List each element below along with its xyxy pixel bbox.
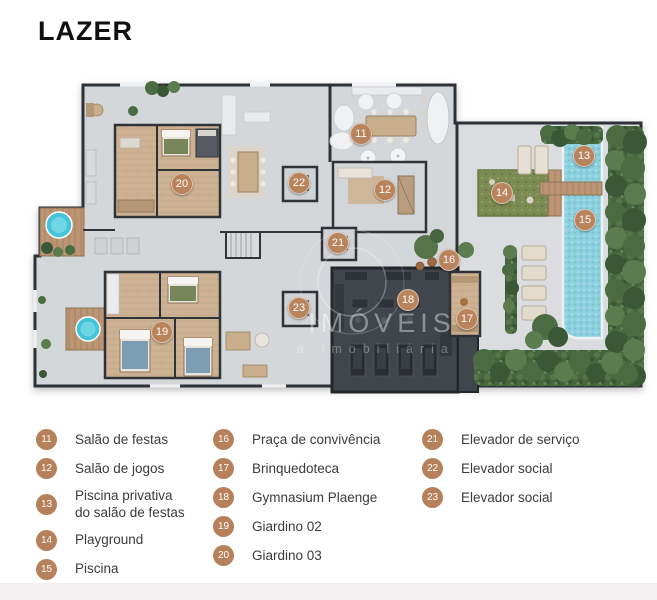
legend-column: 21Elevador de serviço22Elevador social23… [422,429,622,516]
legend-number-badge: 22 [422,458,443,479]
legend-number-badge: 15 [36,559,57,580]
legend-item-17: 17Brinquedoteca [213,458,403,479]
legend-item-13: 13Piscina privativa do salão de festas [36,487,196,522]
legend-item-11: 11Salão de festas [36,429,196,450]
legend-number-badge: 17 [213,458,234,479]
legend: 11Salão de festas12Salão de jogos13Pisci… [0,429,657,589]
legend-label: Praça de convivência [252,431,380,448]
legend-number-badge: 14 [36,530,57,551]
floor-plan: IMÓVEIS a imobiliária 111213141516171819… [0,0,657,420]
legend-item-23: 23Elevador social [422,487,622,508]
legend-item-12: 12Salão de jogos [36,458,196,479]
legend-item-18: 18Gymnasium Plaenge [213,487,403,508]
legend-number-badge: 21 [422,429,443,450]
page: LAZER [0,0,657,600]
legend-number-badge: 18 [213,487,234,508]
legend-item-15: 15Piscina [36,559,196,580]
legend-label: Salão de festas [75,431,168,448]
games-room [333,162,426,232]
legend-label: Piscina privativa do salão de festas [75,487,187,522]
legend-item-21: 21Elevador de serviço [422,429,622,450]
apartment-block-top [115,125,220,217]
legend-number-badge: 19 [213,516,234,537]
legend-label: Giardino 03 [252,547,322,564]
legend-item-19: 19Giardino 02 [213,516,403,537]
legend-column: 11Salão de festas12Salão de jogos13Pisci… [36,429,196,588]
footer-strip [0,583,657,600]
legend-label: Elevador social [461,489,553,506]
legend-item-22: 22Elevador social [422,458,622,479]
legend-column: 16Praça de convivência17Brinquedoteca18G… [213,429,403,574]
apartment-block-middle [105,272,220,378]
legend-label: Elevador social [461,460,553,477]
legend-number-badge: 23 [422,487,443,508]
legend-number-badge: 20 [213,545,234,566]
legend-number-badge: 11 [36,429,57,450]
legend-number-badge: 16 [213,429,234,450]
legend-label: Playground [75,531,143,548]
watermark-line2: a imobiliária [297,342,455,356]
legend-label: Brinquedoteca [252,460,339,477]
legend-label: Gymnasium Plaenge [252,489,377,506]
legend-item-20: 20Giardino 03 [213,545,403,566]
floor-plan-graphic: IMÓVEIS a imobiliária [0,0,657,420]
legend-label: Piscina [75,560,119,577]
legend-item-16: 16Praça de convivência [213,429,403,450]
legend-item-14: 14Playground [36,530,196,551]
legend-label: Giardino 02 [252,518,322,535]
legend-number-badge: 13 [36,494,57,515]
legend-label: Salão de jogos [75,460,164,477]
legend-number-badge: 12 [36,458,57,479]
legend-label: Elevador de serviço [461,431,580,448]
watermark-line1: IMÓVEIS [308,307,456,338]
